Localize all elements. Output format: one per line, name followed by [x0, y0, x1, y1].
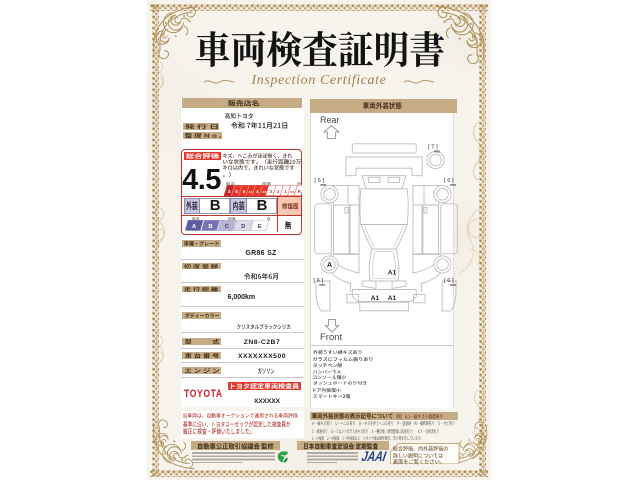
svg-text:S: S	[228, 189, 231, 194]
svg-text:mm: mm	[450, 283, 456, 287]
svg-text:A1: A1	[371, 295, 380, 302]
svg-text:mm: mm	[319, 283, 325, 287]
svg-text:4.5: 4.5	[249, 190, 253, 194]
svg-text:A1: A1	[388, 270, 397, 277]
svg-text:E: E	[258, 224, 262, 230]
svg-text:3.5: 3.5	[262, 190, 266, 194]
svg-text:RA: RA	[291, 190, 295, 194]
svg-text:A: A	[327, 262, 332, 269]
svg-text:mm: mm	[434, 150, 440, 154]
svg-text:mm: mm	[320, 183, 326, 187]
svg-text:B: B	[209, 224, 213, 230]
svg-text:mm: mm	[450, 183, 456, 187]
svg-text:D: D	[241, 224, 245, 230]
svg-text:R: R	[298, 189, 301, 194]
svg-text:A1: A1	[388, 295, 397, 302]
